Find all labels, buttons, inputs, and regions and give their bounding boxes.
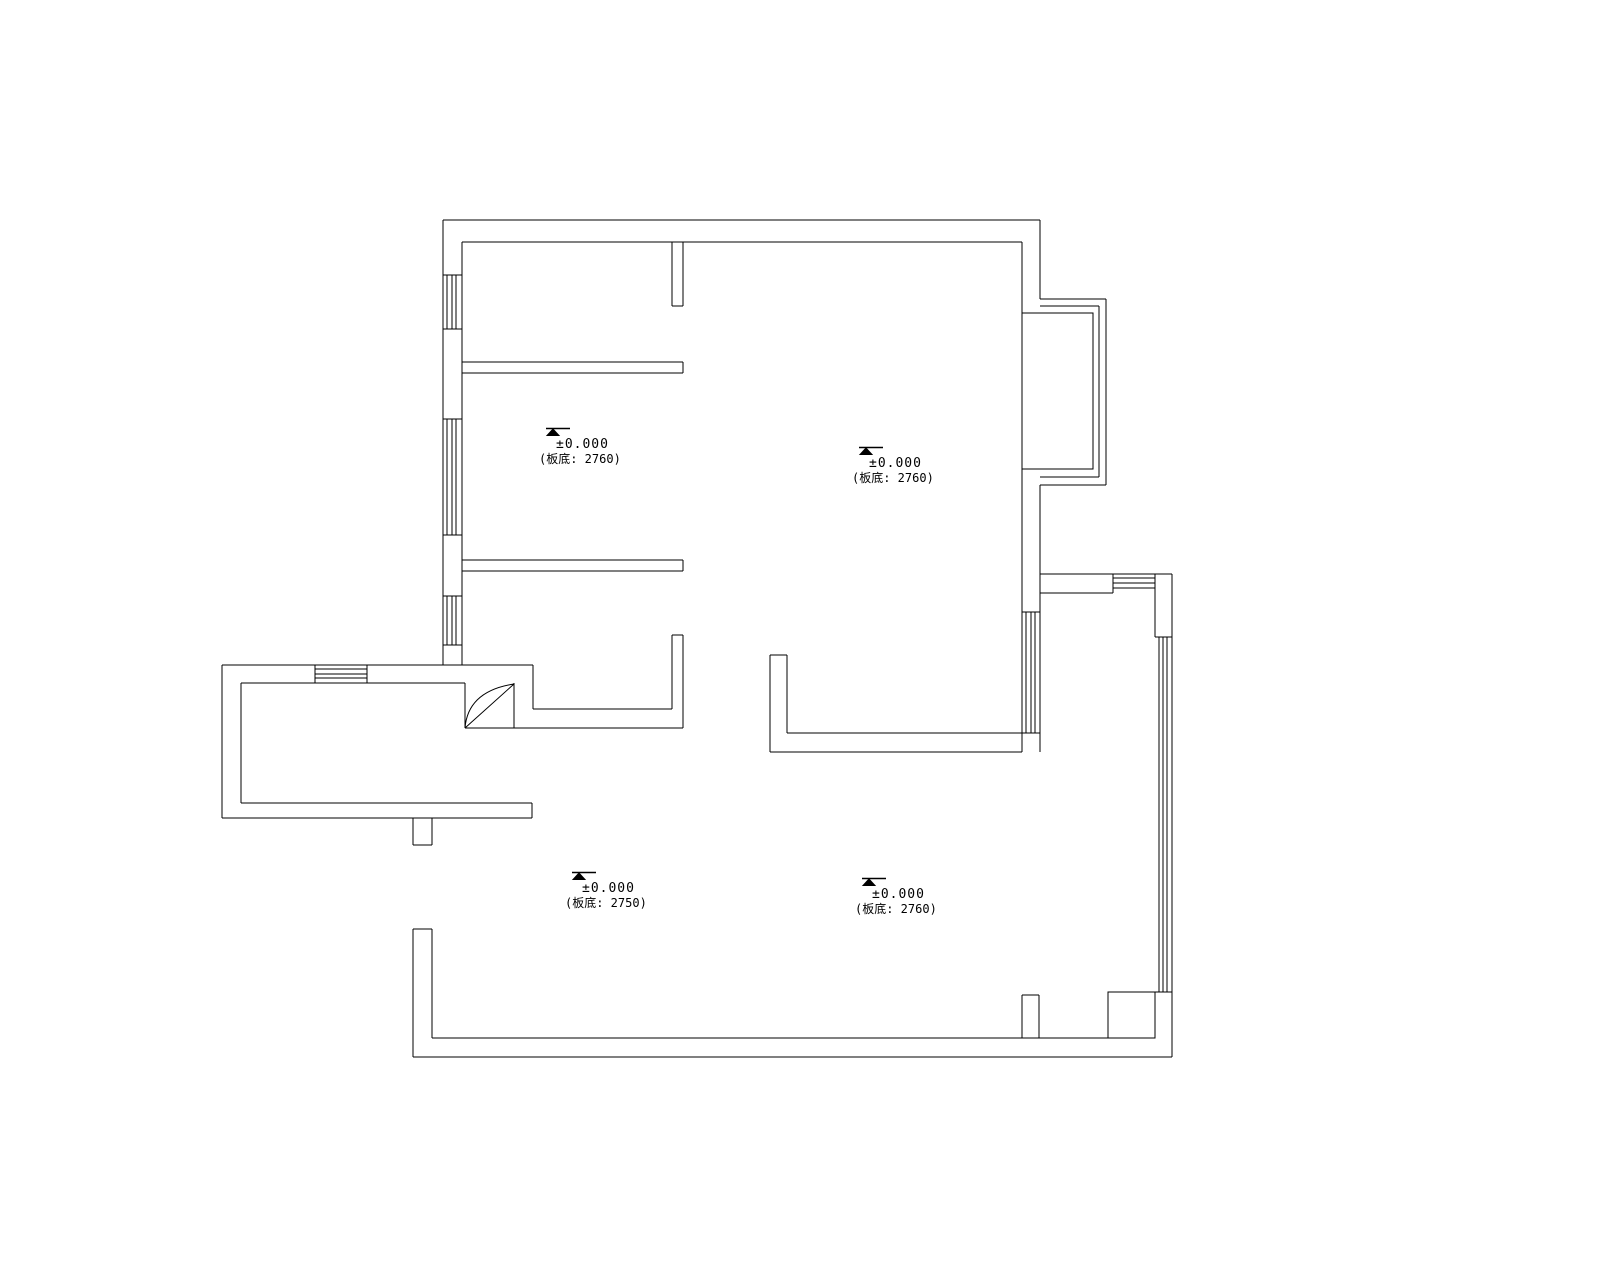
column-block <box>1108 992 1155 1038</box>
elevation-symbol-icon <box>545 422 577 436</box>
door-leaf <box>465 684 514 728</box>
elevation-symbol-icon <box>861 872 893 886</box>
elevation-symbol-icon <box>858 441 890 455</box>
slab-bottom-note: (板底: 2760) <box>852 471 978 485</box>
floor-plan-drawing <box>0 0 1600 1280</box>
slab-bottom-note: (板底: 2760) <box>855 902 981 916</box>
elevation-value: ±0.000 <box>872 888 981 902</box>
elevation-marker-4: ±0.000 (板底: 2760) <box>861 872 981 916</box>
floor-plan-canvas: ±0.000 (板底: 2760) ±0.000 (板底: 2760) ±0.0… <box>0 0 1600 1280</box>
elevation-marker-1: ±0.000 (板底: 2760) <box>545 422 665 466</box>
elevation-value: ±0.000 <box>582 882 691 896</box>
slab-bottom-note: (板底: 2760) <box>539 452 665 466</box>
elevation-marker-2: ±0.000 (板底: 2760) <box>858 441 978 485</box>
bay-window-box <box>1022 313 1093 469</box>
elevation-value: ±0.000 <box>556 438 665 452</box>
elevation-marker-3: ±0.000 (板底: 2750) <box>571 866 691 910</box>
slab-bottom-note: (板底: 2750) <box>565 896 691 910</box>
elevation-value: ±0.000 <box>869 457 978 471</box>
elevation-symbol-icon <box>571 866 603 880</box>
